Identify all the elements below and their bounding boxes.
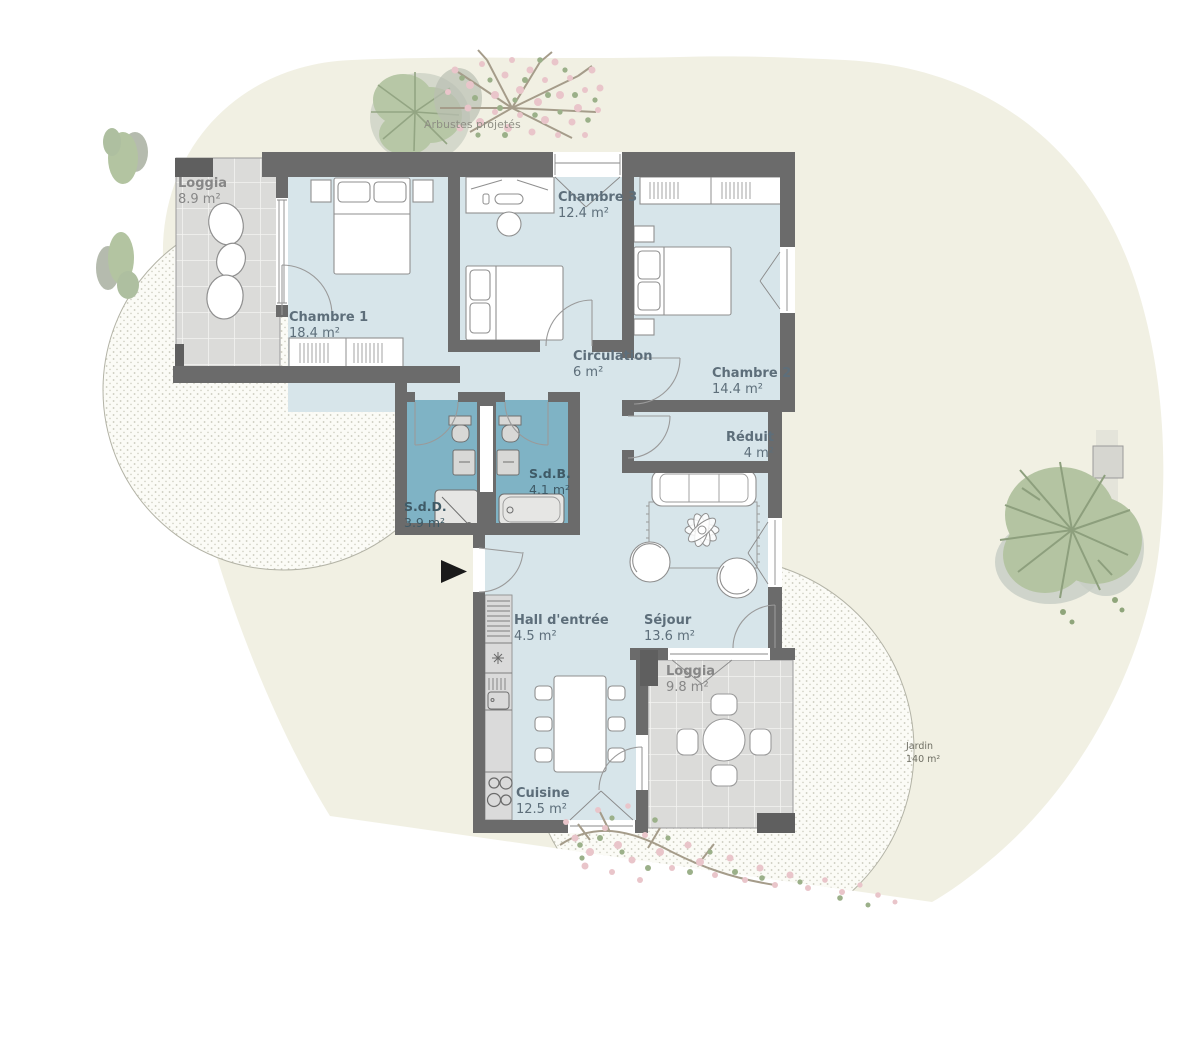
- room-label-chambre-2: Chambre 2 14.4 m²: [712, 366, 791, 398]
- room-label-reduit: Réduit 4 m²: [722, 430, 774, 462]
- room-label-sdb: S.d.B. 4.1 m²: [529, 466, 571, 498]
- sofa-icon: [652, 470, 756, 506]
- wardrobe-icon: [289, 338, 403, 367]
- dining-table-icon: [535, 676, 625, 772]
- pocket-door-slot: [480, 406, 493, 492]
- room-label-hall: Hall d'entrée 4.5 m²: [514, 613, 609, 645]
- bush-icon: [96, 128, 148, 299]
- room-label-circulation: Circulation 6 m²: [573, 349, 652, 381]
- room-label-loggia-1: Loggia 8.9 m²: [178, 176, 227, 208]
- bathtub-icon: [499, 494, 564, 525]
- room-label-chambre-3: Chambre 3 12.4 m²: [558, 190, 637, 222]
- floor-plan-drawing: [0, 0, 1200, 1042]
- shrubs-note: Arbustes projetés: [424, 118, 521, 131]
- room-label-cuisine: Cuisine 12.5 m²: [516, 786, 570, 818]
- room-label-sejour: Séjour 13.6 m²: [644, 613, 695, 645]
- floor-plan-page: Arbustes projetés Loggia 8.9 m² Chambre …: [0, 0, 1200, 1042]
- bed-icon: [466, 266, 563, 340]
- garden-label: Jardin 140 m²: [906, 740, 940, 766]
- wardrobe-icon: [640, 177, 782, 204]
- room-label-sdd: S.d.D. 3.9 m²: [404, 499, 447, 531]
- room-label-loggia-2: Loggia 9.8 m²: [666, 664, 715, 696]
- room-label-chambre-1: Chambre 1 18.4 m²: [289, 310, 368, 342]
- kitchen-counter: [485, 595, 512, 820]
